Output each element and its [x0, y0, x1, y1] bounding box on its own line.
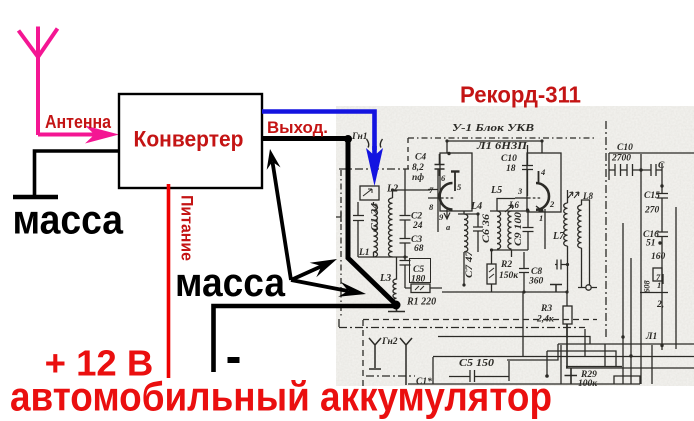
svg-text:С8: С8 — [531, 267, 542, 277]
svg-text:L2: L2 — [386, 184, 398, 195]
svg-text:Выход.: Выход. — [267, 118, 328, 137]
svg-text:1: 1 — [539, 213, 543, 223]
svg-text:18: 18 — [506, 164, 516, 174]
svg-text:608: 608 — [642, 280, 652, 294]
svg-text:С5: С5 — [413, 265, 424, 275]
svg-text:С: С — [658, 161, 665, 171]
svg-text:4: 4 — [540, 167, 545, 177]
svg-text:2,: 2, — [656, 300, 664, 310]
svg-text:2700: 2700 — [611, 154, 631, 164]
svg-text:270: 270 — [644, 206, 660, 216]
svg-text:Л1 6Н3П: Л1 6Н3П — [476, 141, 528, 152]
svg-text:L4: L4 — [470, 201, 482, 212]
svg-text:С10: С10 — [617, 143, 633, 153]
svg-text:1: 1 — [657, 280, 661, 290]
svg-text:С10: С10 — [501, 154, 517, 164]
svg-text:автомобильный аккумулятор: автомобильный аккумулятор — [10, 374, 552, 420]
svg-text:С15: С15 — [644, 191, 660, 201]
svg-text:С7 47: С7 47 — [464, 250, 474, 278]
svg-text:24: 24 — [412, 221, 423, 231]
svg-text:Л1: Л1 — [645, 332, 657, 342]
svg-text:51: 51 — [646, 239, 656, 249]
svg-text:L8: L8 — [582, 191, 593, 201]
svg-text:Гн1: Гн1 — [351, 132, 367, 142]
svg-text:У-1 Блок УКВ: У-1 Блок УКВ — [452, 122, 534, 134]
svg-text:С2: С2 — [411, 212, 422, 222]
svg-text:180: 180 — [411, 275, 426, 285]
svg-text:Антенна: Антенна — [45, 112, 112, 132]
svg-text:С4: С4 — [415, 153, 426, 163]
svg-text:100к: 100к — [578, 379, 598, 389]
svg-text:68: 68 — [414, 244, 424, 254]
svg-text:2,4к: 2,4к — [536, 315, 555, 325]
svg-text:L7: L7 — [552, 231, 565, 242]
svg-text:8,2: 8,2 — [412, 163, 424, 173]
svg-text:L5: L5 — [490, 185, 502, 196]
svg-text:360: 360 — [528, 277, 544, 287]
svg-text:150к: 150к — [499, 271, 519, 281]
svg-text:пф: пф — [412, 172, 424, 183]
svg-text:160: 160 — [651, 252, 666, 262]
svg-text:масса: масса — [175, 261, 286, 305]
svg-text:L3: L3 — [379, 273, 391, 284]
svg-text:Конвертер: Конвертер — [134, 126, 244, 151]
svg-text:3: 3 — [517, 186, 523, 196]
svg-text:L1: L1 — [358, 248, 370, 258]
svg-text:С6 36: С6 36 — [481, 213, 491, 243]
svg-text:масса: масса — [13, 196, 125, 242]
svg-text:2: 2 — [549, 199, 555, 209]
svg-text:С1 24: С1 24 — [370, 202, 380, 231]
svg-text:Питание: Питание — [178, 195, 197, 261]
svg-text:R1 220: R1 220 — [406, 297, 436, 308]
svg-text:Рекорд-311: Рекорд-311 — [460, 82, 581, 108]
svg-text:R3: R3 — [540, 304, 552, 314]
svg-text:С5 150: С5 150 — [459, 358, 494, 369]
svg-text:R2: R2 — [500, 260, 512, 270]
svg-text:С9 100: С9 100 — [513, 211, 523, 246]
svg-text:L6: L6 — [508, 200, 519, 210]
svg-text:Гн2: Гн2 — [381, 337, 398, 347]
